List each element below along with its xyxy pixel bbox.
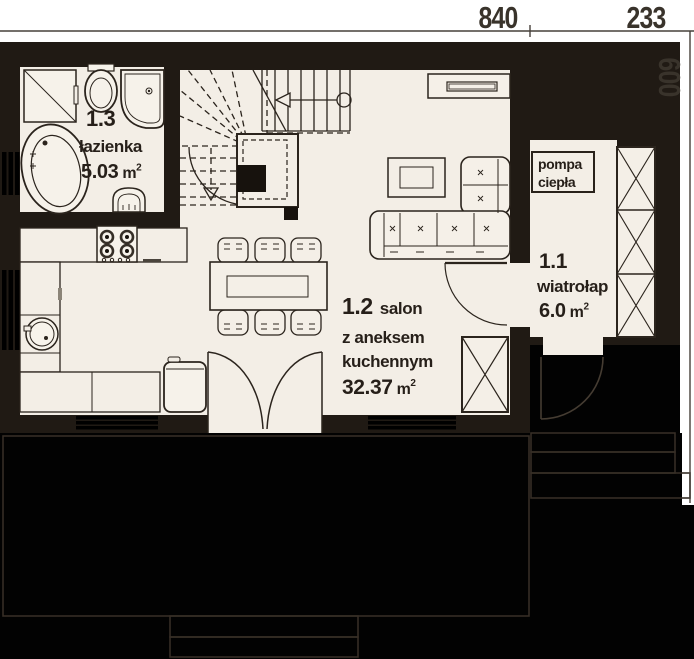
area-exponent: 2 [136,162,141,173]
room-name-salon-line2: z aneksem [342,328,424,348]
washing-machine-icon [24,70,78,122]
page-margin [682,433,694,505]
room-name-bathroom: łazienka [79,137,142,157]
door-opening [510,263,530,327]
room-name-salon: salon [380,299,422,319]
kitchen-counter-left [20,262,60,372]
dimension-top-233: 233 [614,0,678,36]
heat-pump-line2: ciepła [538,173,593,191]
cooktop-icon [97,226,137,262]
room-area-hall: 6.0m2 [539,300,589,323]
room-area-salon: 32.37m2 [342,376,416,400]
room-number-hall: 1.1 [539,250,567,274]
area-unit: m [397,381,411,398]
corner-shower-icon [121,70,164,128]
hall-closet-icon [617,147,655,337]
dining-table-icon [210,262,327,310]
heat-pump-label-box: pompa ciepła [531,151,595,193]
entrance-opening [543,337,603,355]
fridge-icon [164,357,206,412]
room-title-salon: 1.2 salon [342,293,422,320]
area-value: 32.37 [342,376,393,399]
room-name-hall: wiatrołap [537,277,608,297]
area-unit: m [570,304,584,321]
chair-icon [218,238,248,263]
window-icon [76,416,158,430]
porch-area [530,345,680,433]
room-name-salon-line3: kuchennym [342,352,433,372]
area-exponent: 2 [410,378,415,389]
area-exponent: 2 [583,301,588,312]
kitchen-counter-bottom [20,372,160,412]
chair-icon [218,310,248,335]
coffee-table-icon [388,158,445,197]
chair-icon [255,310,285,335]
window-icon [368,416,456,430]
area-value: 6.0 [539,300,566,322]
dimension-top-840: 840 [466,0,530,36]
heat-pump-line1: pompa [538,155,593,173]
chair-icon [291,310,321,335]
toilet-icon [85,64,117,112]
window-icon [2,270,20,350]
room-number-salon: 1.2 [342,293,373,320]
chair-icon [255,238,285,263]
chimney-icon [237,134,298,220]
dining-set [210,238,327,335]
room-area-bathroom: 5.03m2 [81,161,141,184]
washbasin-icon [113,188,145,212]
dimension-right-600: 600 [657,50,687,104]
room-number-bathroom: 1.3 [86,106,115,132]
terrace-area [0,433,694,659]
chair-icon [291,238,321,263]
french-door-icon [208,352,322,433]
area-unit: m [122,165,136,182]
area-value: 5.03 [81,161,118,183]
tv-cabinet-icon [428,74,510,98]
floor-plan: 840 233 600 1.3 łazienka 5.03m2 1.2 salo… [0,0,694,659]
wardrobe-icon [462,337,508,412]
window-icon [2,152,20,195]
